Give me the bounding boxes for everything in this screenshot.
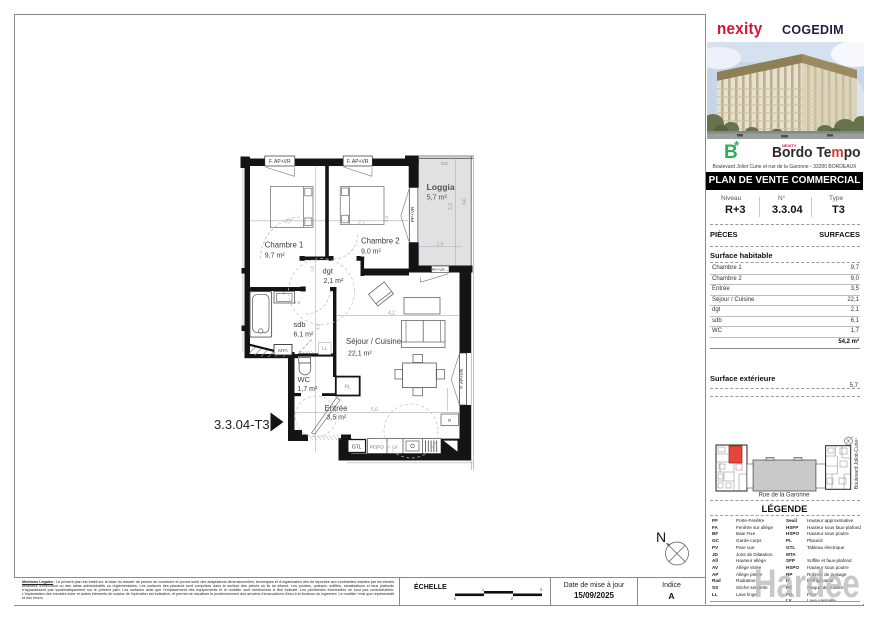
svg-text:LL: LL [322,345,328,350]
svg-text:2: 2 [511,597,513,600]
svg-text:PC|FO: PC|FO [370,445,384,450]
svg-text:3.3.04-T3: 3.3.04-T3 [214,417,270,432]
svg-text:5,7 m²: 5,7 m² [427,193,448,202]
svg-text:GC: GC [462,197,468,205]
svg-text:2,1 m²: 2,1 m² [324,278,345,285]
svg-text:MTA: MTA [278,348,289,354]
svg-text:3,3: 3,3 [448,203,454,210]
svg-text:6,1 m²: 6,1 m² [294,332,315,339]
svg-text:1: 1 [482,588,484,592]
svg-text:PF+VR: PF+VR [410,206,416,222]
svg-text:WC: WC [298,375,311,384]
svg-text:1,7 m²: 1,7 m² [298,386,319,393]
svg-text:3,5 m²: 3,5 m² [327,415,348,422]
svg-text:3: 3 [540,588,542,592]
svg-text:2,9: 2,9 [294,300,301,305]
svg-text:22,1 m²: 22,1 m² [348,351,372,358]
svg-text:0: 0 [454,597,456,600]
svg-text:1,0: 1,0 [310,265,315,272]
svg-text:9,0 m²: 9,0 m² [361,249,382,256]
svg-text:Chambre 1: Chambre 1 [265,241,304,250]
svg-text:Entrée: Entrée [325,404,348,413]
svg-text:PF+VR→: PF+VR→ [432,267,449,272]
svg-text:2,7: 2,7 [285,219,292,225]
svg-text:4,2: 4,2 [388,310,395,316]
svg-text:GC: GC [441,161,449,167]
svg-text:PL: PL [344,385,350,391]
svg-text:9,7 m²: 9,7 m² [265,253,286,260]
svg-text:Rue de la Garonne: Rue de la Garonne [759,493,810,499]
svg-text:GTL: GTL [352,444,362,450]
svg-text:3,4: 3,4 [384,215,389,222]
svg-text:2,7: 2,7 [358,221,365,227]
svg-text:F. AP+VR: F. AP+VR [269,159,291,165]
svg-text:dgt: dgt [323,267,334,276]
svg-text:Séjour / Cuisine: Séjour / Cuisine [346,337,401,346]
svg-text:3,3: 3,3 [316,323,321,330]
svg-text:Loggia: Loggia [427,182,455,192]
svg-text:F. AP+VR: F. AP+VR [347,159,369,165]
svg-text:N: N [656,529,666,545]
svg-text:1,6: 1,6 [437,241,444,247]
svg-text:Chambre 2: Chambre 2 [361,237,400,246]
svg-text:F. AP+VR: F. AP+VR [459,368,464,388]
svg-text:5,6: 5,6 [371,407,378,413]
svg-text:sdb: sdb [294,320,306,329]
